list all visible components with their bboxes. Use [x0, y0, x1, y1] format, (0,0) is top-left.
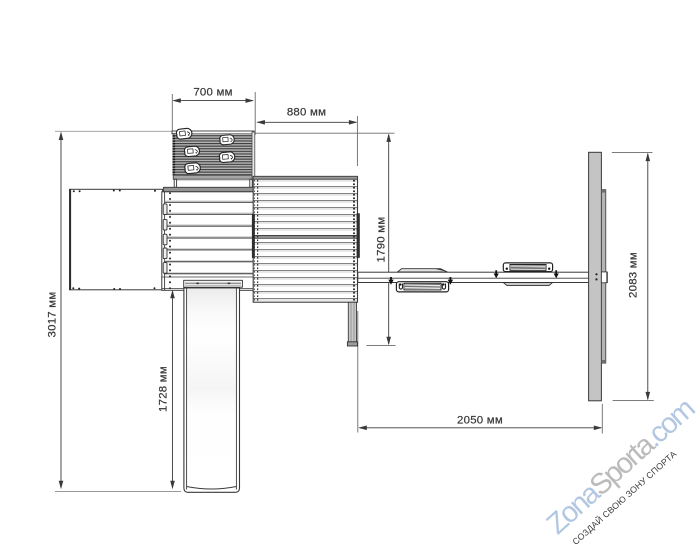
svg-text:2083 мм: 2083 мм: [628, 252, 640, 298]
svg-text:ZonaSporta.com: ZonaSporta.com: [541, 393, 700, 541]
svg-text:3017 мм: 3017 мм: [47, 292, 59, 338]
svg-text:1790 мм: 1790 мм: [376, 217, 388, 263]
svg-text:1728 мм: 1728 мм: [158, 366, 170, 412]
svg-text:2050 мм: 2050 мм: [457, 414, 503, 426]
svg-text:880 мм: 880 мм: [287, 106, 326, 118]
svg-text:700 мм: 700 мм: [193, 87, 232, 99]
